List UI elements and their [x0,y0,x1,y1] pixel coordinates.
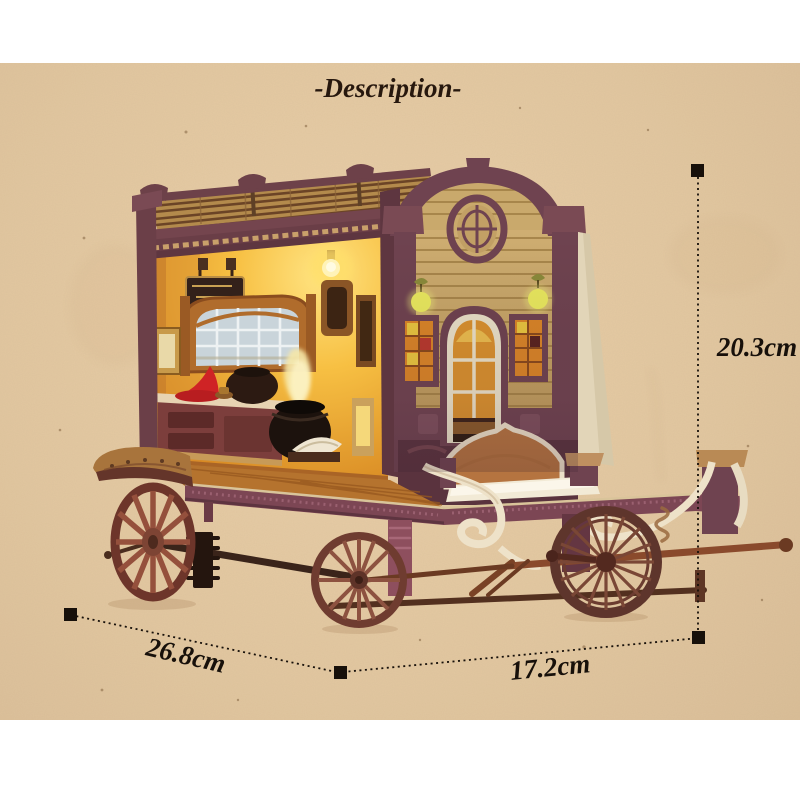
svg-text:-Description-: -Description- [315,73,462,103]
svg-text:20.3cm: 20.3cm [716,332,797,362]
